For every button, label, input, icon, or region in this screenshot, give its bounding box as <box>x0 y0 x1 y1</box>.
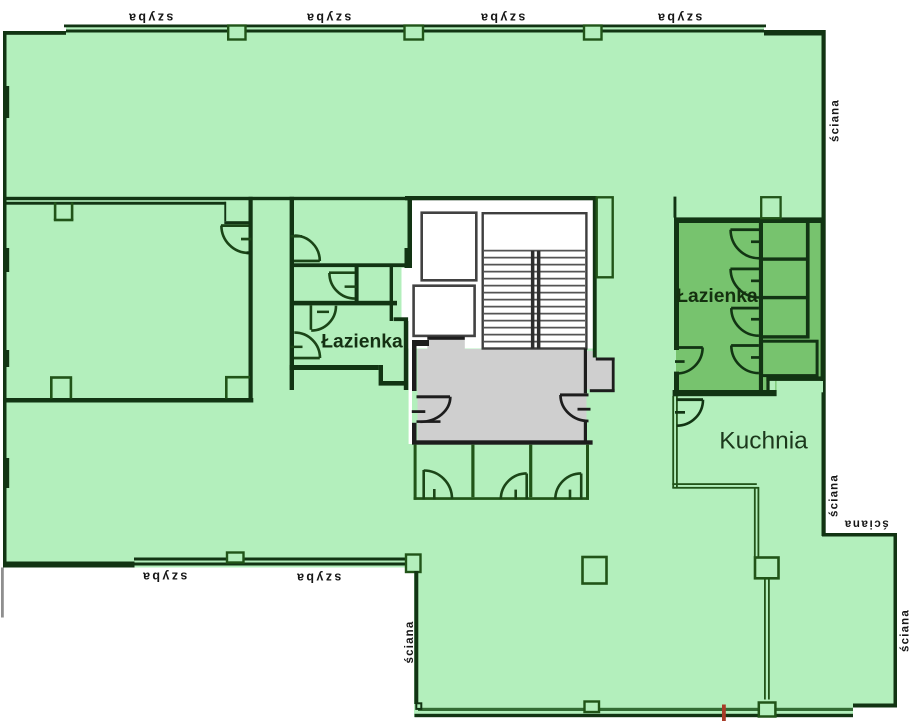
svg-text:ściana: ściana <box>829 474 841 517</box>
svg-text:szyba: szyba <box>656 11 703 25</box>
svg-text:szyba: szyba <box>295 571 342 585</box>
svg-text:ściana: ściana <box>900 609 911 652</box>
svg-text:Kuchnia: Kuchnia <box>719 428 808 455</box>
svg-text:szyba: szyba <box>479 11 526 25</box>
svg-text:szyba: szyba <box>305 11 352 25</box>
svg-text:szyba: szyba <box>141 570 188 584</box>
svg-text:szyba: szyba <box>127 11 174 25</box>
svg-text:ściana: ściana <box>404 620 416 663</box>
svg-text:Łazienka: Łazienka <box>676 286 758 307</box>
svg-text:Łazienka: Łazienka <box>321 332 403 353</box>
svg-text:ściana: ściana <box>830 99 842 142</box>
svg-text:ściana: ściana <box>843 518 888 530</box>
